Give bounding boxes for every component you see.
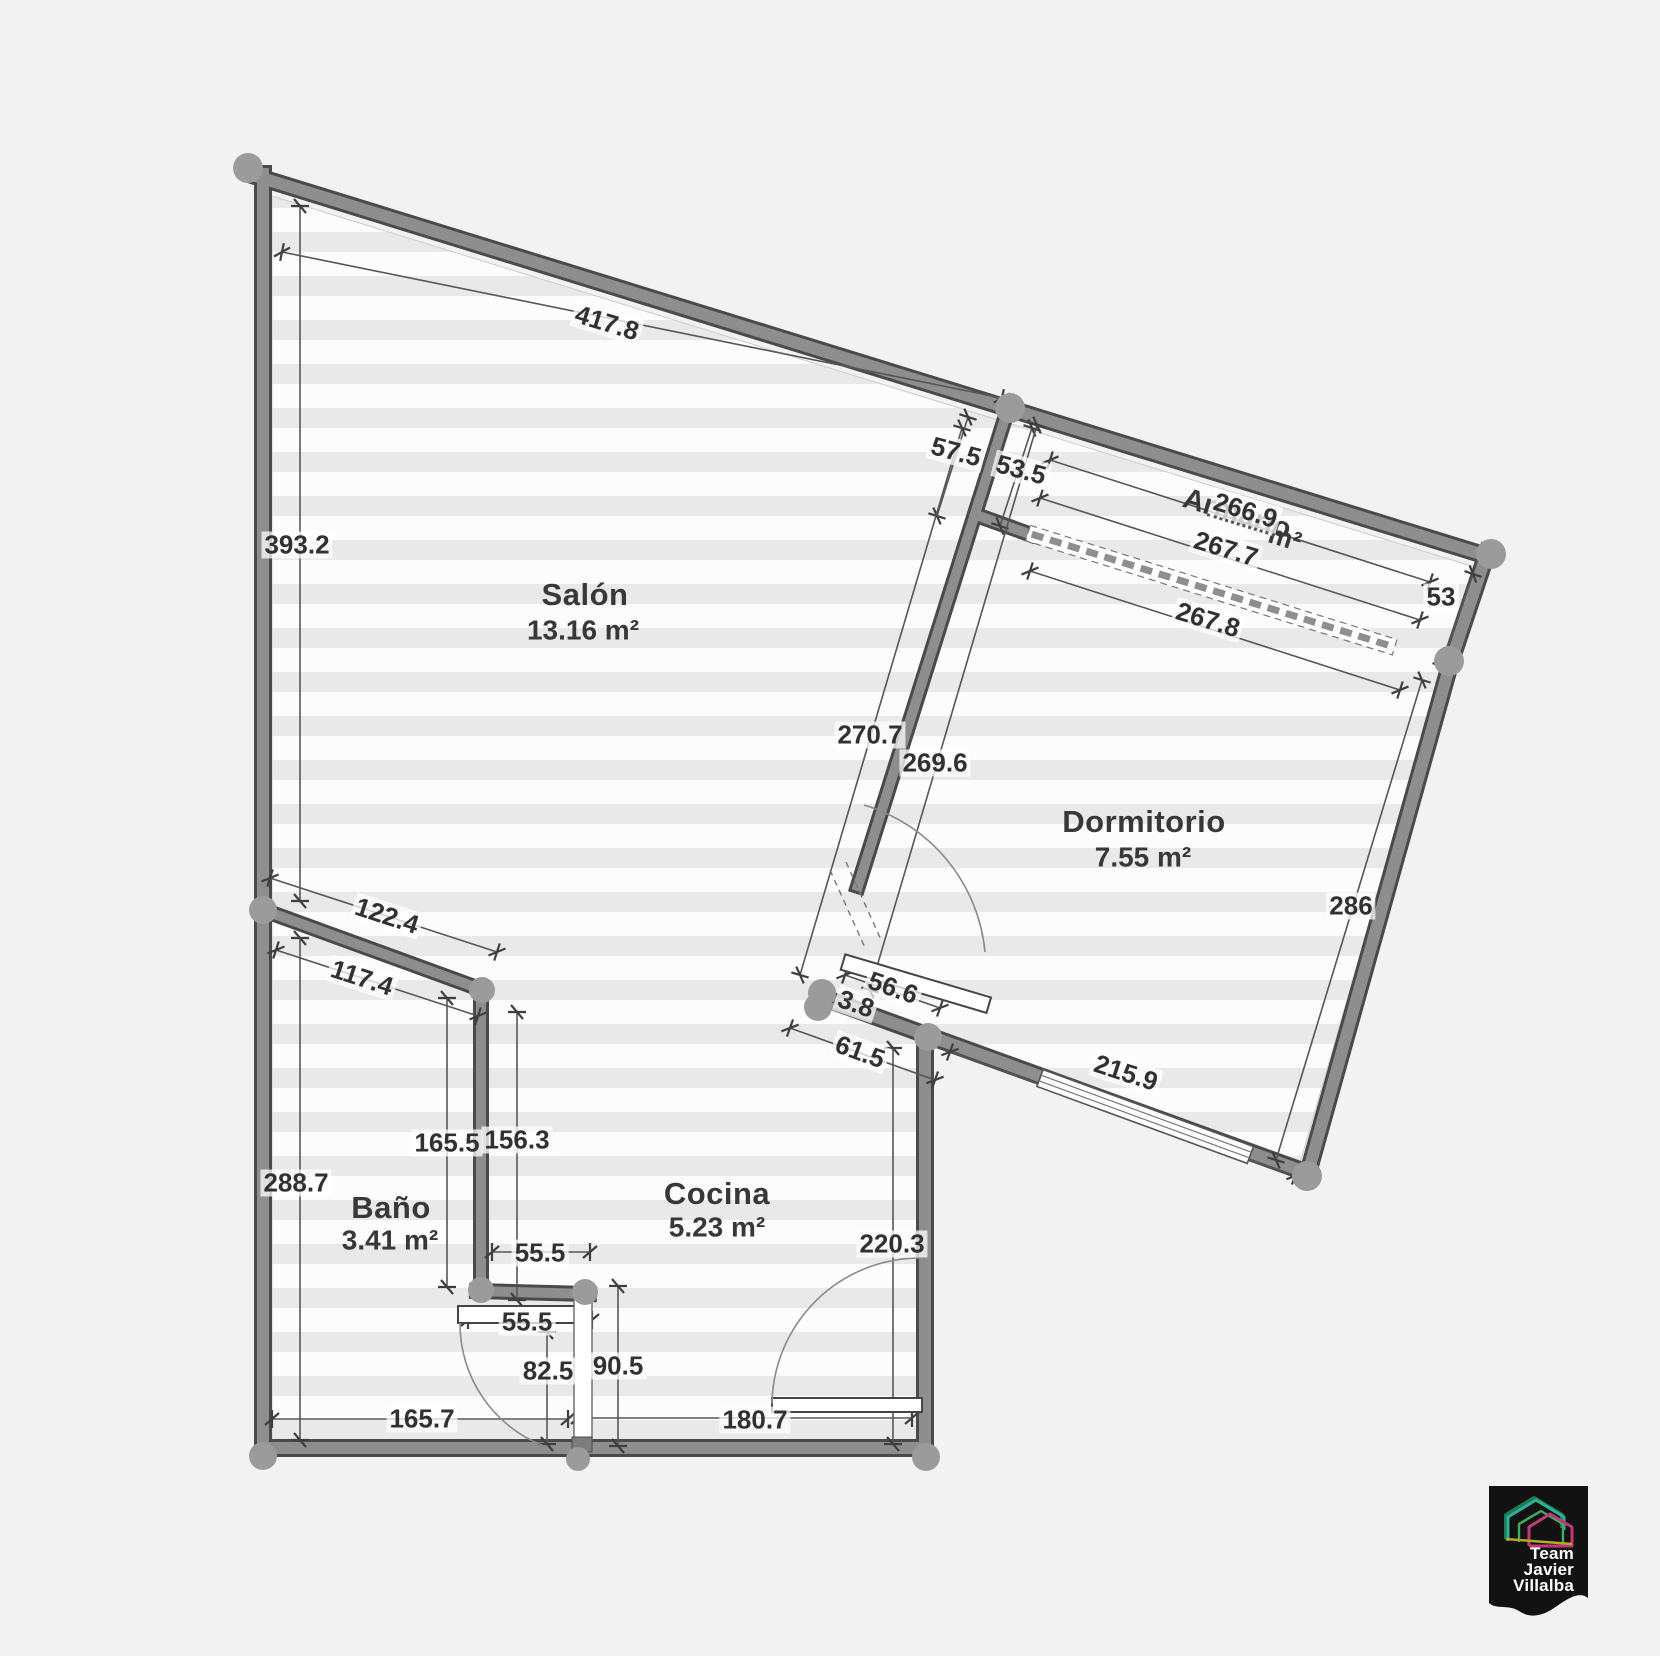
dimension-label: 286 <box>1326 892 1375 919</box>
dimension-label: 393.2 <box>261 531 332 558</box>
room-area-cocina: 5.23 m² <box>669 1212 766 1241</box>
logo-text-line3: Villalba <box>1489 1578 1574 1594</box>
dimension-label: 269.6 <box>899 749 970 776</box>
dimension-label: 82.5 <box>520 1357 577 1384</box>
room-label-salon: Salón <box>542 579 629 611</box>
dimension-label: 90.5 <box>590 1352 647 1379</box>
room-label-dormitorio: Dormitorio <box>1062 806 1225 838</box>
floor-plan-drawing <box>0 0 1660 1656</box>
dimension-label: 55.5 <box>499 1308 556 1335</box>
dimension-label: 165.7 <box>386 1405 457 1432</box>
dimension-label: 55.5 <box>512 1239 569 1266</box>
room-label-bano: Baño <box>351 1192 431 1224</box>
room-area-bano: 3.41 m² <box>342 1225 439 1254</box>
dimension-label: 156.3 <box>481 1126 552 1153</box>
floor-plan-canvas: Salón 13.16 m² Dormitorio 7.55 m² Baño 3… <box>0 0 1660 1656</box>
room-area-dormitorio: 7.55 m² <box>1095 842 1192 871</box>
dimension-label: 165.5 <box>411 1129 482 1156</box>
dimension-label: 220.3 <box>856 1230 927 1257</box>
brand-logo: Team Javier Villalba <box>1489 1486 1588 1618</box>
dimension-label: 288.7 <box>260 1169 331 1196</box>
dimension-label: 270.7 <box>834 721 905 748</box>
room-area-salon: 13.16 m² <box>527 615 639 644</box>
dimension-label: 53 <box>1424 583 1459 610</box>
dimension-label: 180.7 <box>719 1406 790 1433</box>
room-label-cocina: Cocina <box>664 1178 770 1210</box>
